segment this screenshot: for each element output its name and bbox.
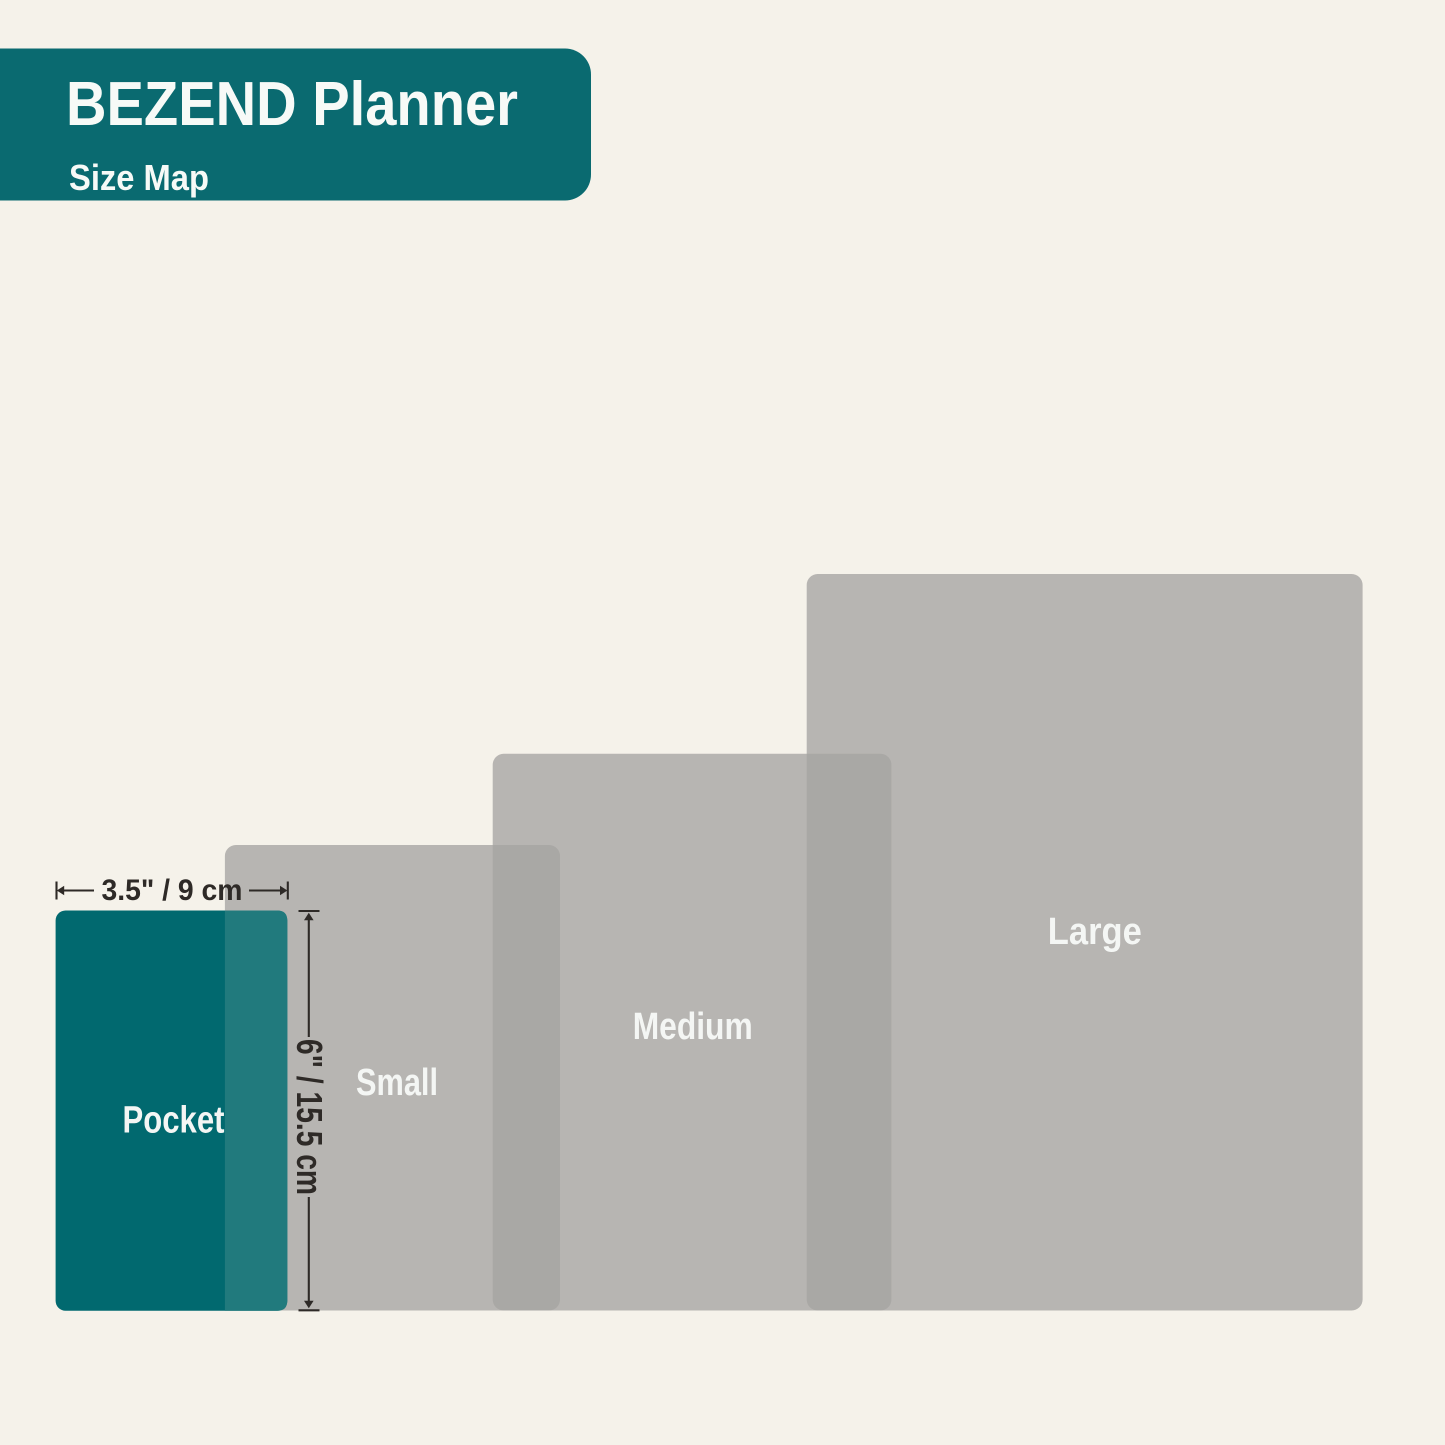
svg-text:BEZEND Planner: BEZEND Planner (66, 70, 518, 139)
svg-text:Medium: Medium (633, 1006, 753, 1048)
svg-text:Size Map: Size Map (69, 157, 209, 198)
svg-text:6" / 15.5 cm: 6" / 15.5 cm (289, 1039, 330, 1195)
svg-text:Pocket: Pocket (123, 1100, 225, 1142)
svg-text:Large: Large (1048, 911, 1142, 953)
svg-text:Small: Small (356, 1062, 438, 1104)
svg-text:3.5" / 9 cm: 3.5" / 9 cm (102, 874, 243, 907)
